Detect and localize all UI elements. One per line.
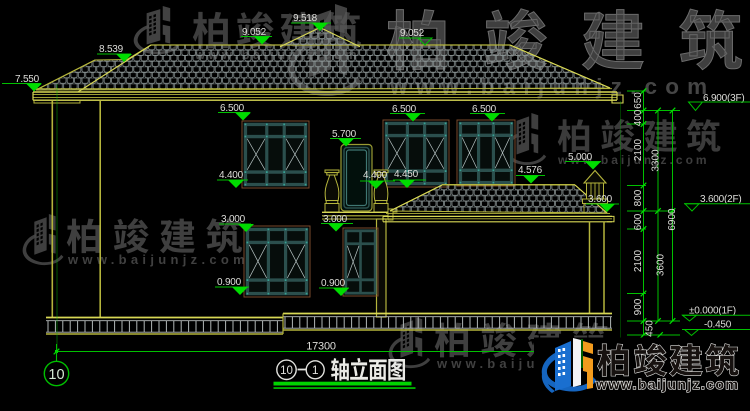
svg-text:4.400: 4.400 [363,170,388,181]
svg-text:4.576: 4.576 [518,165,543,176]
svg-text:1: 1 [312,363,319,377]
svg-text:650: 650 [633,92,644,109]
svg-text:400: 400 [633,109,644,126]
svg-text:800: 800 [633,189,644,206]
svg-text:450: 450 [645,320,656,337]
svg-text:www.baijunjz.com: www.baijunjz.com [67,252,249,267]
svg-text:8.539: 8.539 [99,44,124,55]
svg-text:0.900: 0.900 [321,278,346,289]
svg-text:900: 900 [633,298,644,315]
svg-text:6900: 6900 [667,208,678,231]
svg-text:0.900: 0.900 [217,277,242,288]
svg-text:2100: 2100 [633,138,644,161]
svg-text:10: 10 [280,365,293,377]
svg-text:2100: 2100 [633,249,644,272]
svg-text:17300: 17300 [306,341,336,353]
svg-text:9.052: 9.052 [400,28,425,39]
svg-text:3.000: 3.000 [221,214,246,225]
svg-text:4.400: 4.400 [219,170,244,181]
svg-text:3.600: 3.600 [588,194,613,205]
svg-text:10: 10 [48,367,64,383]
svg-text:-0.450: -0.450 [704,320,732,331]
svg-text:3300: 3300 [651,149,662,172]
svg-text:4.450: 4.450 [394,169,419,180]
svg-text:3600: 3600 [656,253,667,276]
svg-text:9.518: 9.518 [293,13,318,24]
svg-text:600: 600 [633,213,644,230]
svg-text:www.baijunjz.com: www.baijunjz.com [595,377,739,393]
